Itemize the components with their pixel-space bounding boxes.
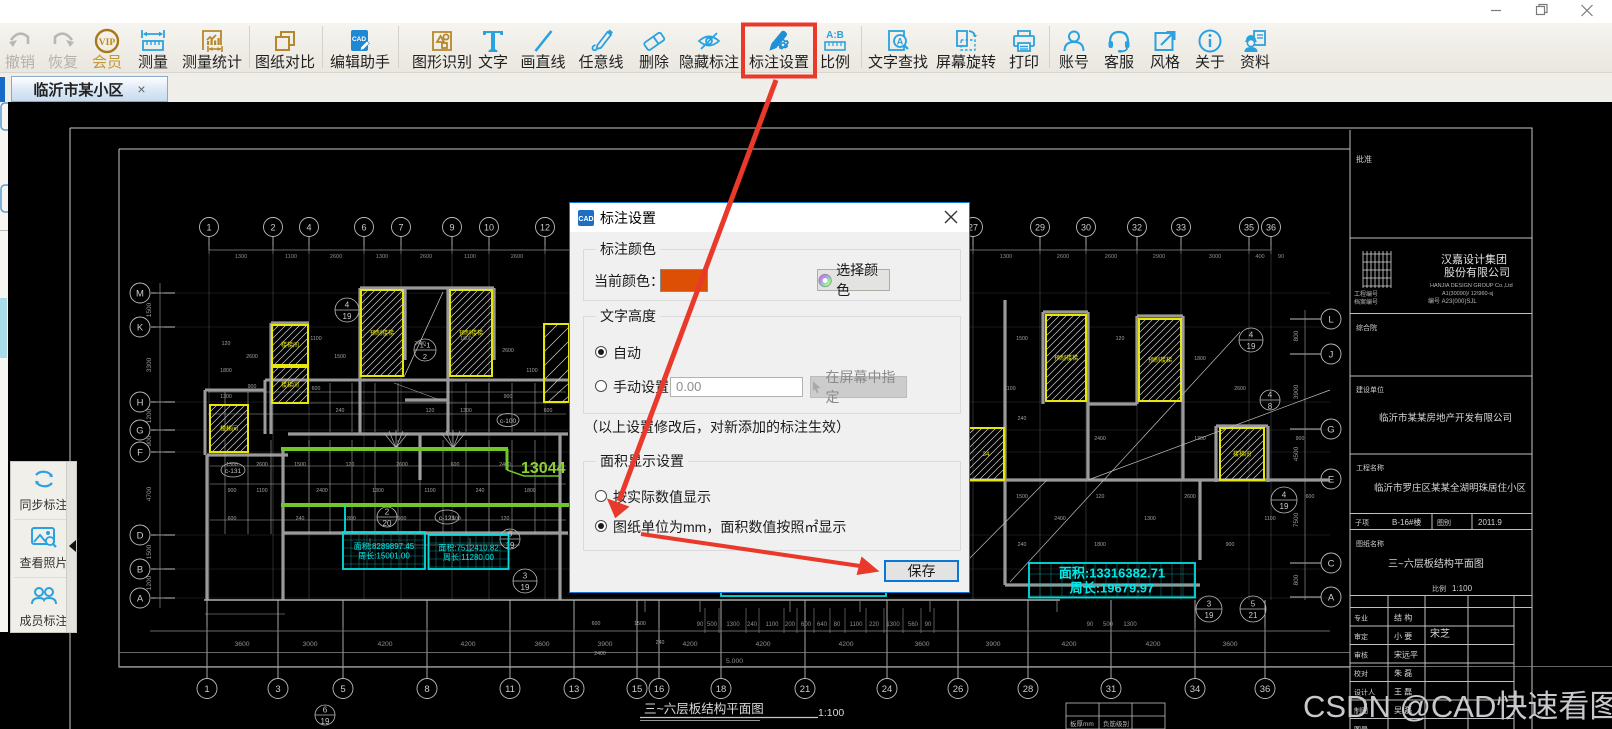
svg-text:1500: 1500 <box>1016 494 1028 500</box>
svg-text:1200: 1200 <box>146 575 153 590</box>
svg-text:120: 120 <box>222 341 231 347</box>
svg-text:3900: 3900 <box>597 641 612 648</box>
svg-text:工程编号: 工程编号 <box>1354 290 1378 298</box>
svg-text:K: K <box>137 323 144 334</box>
svg-text:临沂市罗庄区某某全湖明珠居住小区: 临沂市罗庄区某某全湖明珠居住小区 <box>1374 482 1527 494</box>
svg-text:楼梯间: 楼梯间 <box>220 425 238 433</box>
svg-text:VIP: VIP <box>99 38 116 48</box>
svg-text:宋远平: 宋远平 <box>1394 650 1418 660</box>
svg-text:2600: 2600 <box>420 254 432 260</box>
svg-text:3: 3 <box>275 684 280 695</box>
svg-text:10: 10 <box>484 223 494 233</box>
svg-text:19: 19 <box>321 717 330 726</box>
svg-text:1500: 1500 <box>334 354 346 360</box>
svg-text:3600: 3600 <box>534 641 549 648</box>
svg-text:2400: 2400 <box>414 341 426 347</box>
svg-text:1300: 1300 <box>886 622 900 628</box>
svg-text:120: 120 <box>1116 336 1125 342</box>
svg-text:1300: 1300 <box>220 394 232 400</box>
svg-text:900: 900 <box>248 384 257 390</box>
svg-text:3600: 3600 <box>234 641 249 648</box>
svg-text:90: 90 <box>1087 622 1094 628</box>
svg-text:面积:7512410.82: 面积:7512410.82 <box>438 542 499 552</box>
svg-text:2400: 2400 <box>1094 436 1106 442</box>
svg-text:240: 240 <box>296 516 305 522</box>
svg-text:900: 900 <box>228 488 237 494</box>
svg-text:240: 240 <box>1018 416 1027 422</box>
svg-text:4: 4 <box>345 301 350 310</box>
svg-text:3900: 3900 <box>985 641 1000 648</box>
svg-text:4200: 4200 <box>1145 641 1160 648</box>
svg-text:80: 80 <box>834 622 841 628</box>
svg-text:综合院: 综合院 <box>1356 323 1377 332</box>
svg-text:8: 8 <box>1268 402 1273 411</box>
svg-text:120: 120 <box>346 462 355 468</box>
svg-text:1300: 1300 <box>235 254 247 260</box>
svg-text:24: 24 <box>882 684 893 695</box>
svg-text:2600: 2600 <box>511 254 523 260</box>
svg-text:2400: 2400 <box>1054 516 1066 522</box>
svg-text:8: 8 <box>424 684 429 695</box>
svg-text:1300: 1300 <box>726 622 740 628</box>
svg-text:34: 34 <box>983 452 990 458</box>
svg-text:26: 26 <box>953 684 964 695</box>
svg-text:240: 240 <box>1018 542 1027 548</box>
svg-text:1300: 1300 <box>1144 516 1156 522</box>
svg-text:2400: 2400 <box>499 462 511 468</box>
svg-text:工程名称: 工程名称 <box>1356 463 1384 472</box>
svg-text:1:100: 1:100 <box>818 707 844 719</box>
svg-text:2: 2 <box>385 508 390 517</box>
svg-text:3: 3 <box>1207 600 1212 609</box>
svg-text:120: 120 <box>1096 494 1105 500</box>
svg-text:面积:13316382.71: 面积:13316382.71 <box>1059 566 1165 581</box>
svg-text:500: 500 <box>1103 622 1114 628</box>
svg-text:600: 600 <box>801 622 812 628</box>
svg-text:900: 900 <box>504 394 513 400</box>
svg-text:F: F <box>137 448 143 459</box>
svg-text:H: H <box>137 398 144 409</box>
svg-text:35: 35 <box>1244 223 1254 233</box>
svg-text:1500: 1500 <box>634 621 646 627</box>
svg-text:比例: 比例 <box>1432 584 1446 593</box>
svg-text:2400: 2400 <box>594 651 606 657</box>
svg-text:18: 18 <box>716 684 727 695</box>
svg-text:36: 36 <box>1266 223 1276 233</box>
svg-text:4: 4 <box>1249 331 1254 340</box>
svg-text:800: 800 <box>1293 330 1300 341</box>
svg-text:640: 640 <box>817 622 828 628</box>
svg-text:1500: 1500 <box>294 462 306 468</box>
svg-text:90: 90 <box>1278 254 1284 260</box>
svg-text:2600: 2600 <box>396 462 408 468</box>
svg-text:1100: 1100 <box>1004 386 1015 392</box>
svg-text:600: 600 <box>312 386 321 392</box>
svg-text:2600: 2600 <box>1057 254 1069 260</box>
svg-text:4200: 4200 <box>838 641 853 648</box>
svg-text:2600: 2600 <box>1105 254 1117 260</box>
svg-text:4200: 4200 <box>377 641 392 648</box>
svg-text:600: 600 <box>451 462 460 468</box>
svg-text:15: 15 <box>632 684 643 695</box>
svg-text:B-16#楼: B-16#楼 <box>1392 517 1421 527</box>
svg-text:L: L <box>1328 315 1333 326</box>
svg-text:21: 21 <box>1249 611 1258 620</box>
svg-text:M: M <box>136 289 144 300</box>
svg-text:31: 31 <box>1106 684 1117 695</box>
svg-text:子项: 子项 <box>1355 519 1369 527</box>
svg-text:19: 19 <box>1247 342 1256 351</box>
svg-text:1:100: 1:100 <box>1452 584 1473 593</box>
svg-text:2600: 2600 <box>1234 386 1246 392</box>
svg-text:1200: 1200 <box>146 408 153 423</box>
svg-text:1300: 1300 <box>460 408 472 414</box>
svg-text:1800: 1800 <box>1194 356 1206 362</box>
svg-text:32: 32 <box>1132 223 1142 233</box>
svg-text:1100: 1100 <box>1264 516 1275 522</box>
svg-text:13044: 13044 <box>521 460 566 477</box>
svg-text:股份有限公司: 股份有限公司 <box>1444 265 1510 279</box>
svg-text:1300: 1300 <box>376 254 388 260</box>
svg-text:4200: 4200 <box>755 641 770 648</box>
svg-text:G: G <box>136 426 143 437</box>
svg-text:29: 29 <box>1035 223 1045 233</box>
svg-text:三~六层板结构平面图: 三~六层板结构平面图 <box>1388 557 1484 570</box>
svg-text:900: 900 <box>1226 542 1235 548</box>
svg-text:19: 19 <box>506 541 515 550</box>
svg-text:A: A <box>137 594 144 605</box>
svg-text:审核: 审核 <box>1354 651 1368 660</box>
svg-text:A: A <box>1328 593 1335 604</box>
svg-text:预制楼梯: 预制楼梯 <box>370 329 394 337</box>
svg-text:11: 11 <box>505 684 515 695</box>
svg-text:240: 240 <box>747 622 758 628</box>
svg-text:1100: 1100 <box>766 622 780 628</box>
svg-text:A1(30090)/ 12\960-sj: A1(30090)/ 12\960-sj <box>1442 291 1493 297</box>
svg-text:3600: 3600 <box>914 641 929 648</box>
svg-text:3300: 3300 <box>146 357 153 372</box>
svg-text:校对: 校对 <box>1354 669 1368 678</box>
svg-text:600: 600 <box>1306 494 1315 500</box>
svg-text:A: A <box>897 36 904 46</box>
svg-text:图号: 图号 <box>1354 726 1368 729</box>
svg-text:C: C <box>1328 559 1335 570</box>
svg-text:1500: 1500 <box>1016 336 1028 342</box>
svg-text:HANJIA DESIGN GROUP Co.,Ltd: HANJIA DESIGN GROUP Co.,Ltd <box>1430 283 1513 289</box>
svg-text:3000: 3000 <box>1209 254 1221 260</box>
svg-text:1300: 1300 <box>226 462 238 468</box>
svg-text:2: 2 <box>423 352 427 361</box>
svg-text:4200: 4200 <box>1061 641 1076 648</box>
svg-text:CAD: CAD <box>352 36 366 43</box>
svg-text:图纸名称: 图纸名称 <box>1356 539 1384 548</box>
svg-text:1100: 1100 <box>850 622 864 628</box>
svg-text:4: 4 <box>306 223 311 233</box>
svg-text:预制楼梯: 预制楼梯 <box>1054 354 1078 362</box>
svg-text:2600: 2600 <box>330 254 342 260</box>
svg-text:90: 90 <box>925 622 932 628</box>
svg-text:20: 20 <box>383 519 392 528</box>
svg-text:2600: 2600 <box>1184 494 1196 500</box>
svg-text:4500: 4500 <box>1293 446 1300 461</box>
svg-text:B: B <box>137 565 143 576</box>
svg-text:36: 36 <box>1260 684 1271 695</box>
svg-text:1100: 1100 <box>256 488 267 494</box>
svg-text:周长:15001.00: 周长:15001.00 <box>358 550 410 560</box>
svg-text:周长:11280.00: 周长:11280.00 <box>443 552 495 562</box>
svg-text:板厚mm: 板厚mm <box>1070 719 1094 728</box>
svg-text:CAD: CAD <box>578 216 593 223</box>
svg-text:220: 220 <box>869 622 880 628</box>
svg-text:楼梯间: 楼梯间 <box>281 381 299 389</box>
svg-text:34: 34 <box>1190 684 1201 695</box>
svg-text:负筋级别: 负筋级别 <box>1103 719 1129 728</box>
svg-text:汉嘉设计集团: 汉嘉设计集团 <box>1441 252 1507 266</box>
svg-text:c-100: c-100 <box>500 418 517 425</box>
svg-text:三~六层板结构平面图: 三~六层板结构平面图 <box>644 701 764 716</box>
svg-text:21: 21 <box>800 684 811 695</box>
svg-text:D: D <box>137 531 144 542</box>
svg-text:c-131: c-131 <box>225 468 242 475</box>
svg-text:周长:19679.97: 周长:19679.97 <box>1070 581 1155 596</box>
svg-text:专业: 专业 <box>1354 614 1368 623</box>
svg-text:4200: 4200 <box>682 641 697 648</box>
svg-text:4: 4 <box>1268 391 1273 400</box>
svg-text:朱 磊: 朱 磊 <box>1394 668 1412 678</box>
svg-text:楼梯间: 楼梯间 <box>1233 450 1251 458</box>
svg-text:面积:8289897.45: 面积:8289897.45 <box>354 541 415 551</box>
svg-text:建设单位: 建设单位 <box>1356 385 1384 394</box>
svg-text:120: 120 <box>501 516 510 522</box>
svg-text:1100: 1100 <box>526 368 537 374</box>
svg-text:楼梯间: 楼梯间 <box>281 341 299 349</box>
svg-text:6: 6 <box>361 223 366 233</box>
svg-text:宋芝: 宋芝 <box>1430 627 1450 640</box>
svg-text:5.000: 5.000 <box>726 658 743 665</box>
svg-text:4: 4 <box>1282 491 1287 500</box>
svg-text:240: 240 <box>336 408 345 414</box>
svg-text:1300: 1300 <box>1194 436 1206 442</box>
svg-text:1300: 1300 <box>372 488 384 494</box>
svg-text:预制楼梯: 预制楼梯 <box>1148 356 1172 364</box>
svg-text:120: 120 <box>426 408 435 414</box>
svg-text:3: 3 <box>523 572 528 581</box>
svg-text:1100: 1100 <box>285 254 297 260</box>
svg-text:19: 19 <box>1205 611 1214 620</box>
svg-text:16: 16 <box>654 684 665 695</box>
svg-text:2011.9: 2011.9 <box>1478 518 1502 527</box>
svg-text:结 构: 结 构 <box>1394 613 1412 623</box>
svg-text:批准: 批准 <box>1356 154 1372 164</box>
svg-text:1800: 1800 <box>524 488 536 494</box>
svg-text:900: 900 <box>398 516 407 522</box>
svg-text:临沂市某某房地产开发有限公司: 临沂市某某房地产开发有限公司 <box>1379 412 1512 424</box>
svg-text:1300: 1300 <box>1123 622 1137 628</box>
svg-text:1800: 1800 <box>344 516 356 522</box>
svg-text:6: 6 <box>323 706 328 715</box>
svg-text:7: 7 <box>398 223 403 233</box>
svg-text:编号 A23(000)SJL: 编号 A23(000)SJL <box>1428 297 1477 305</box>
svg-text:1500: 1500 <box>449 516 461 522</box>
svg-text:2900: 2900 <box>1153 254 1165 260</box>
svg-text:19: 19 <box>343 312 352 321</box>
svg-text:2600: 2600 <box>246 354 258 360</box>
svg-text:12: 12 <box>540 223 550 233</box>
svg-text:28: 28 <box>1023 684 1034 695</box>
svg-text:9: 9 <box>449 223 454 233</box>
svg-text:1: 1 <box>204 684 209 695</box>
svg-text:2400: 2400 <box>316 488 328 494</box>
svg-text:600: 600 <box>228 516 237 522</box>
svg-text:小 要: 小 要 <box>1394 632 1412 641</box>
svg-text:档案编号: 档案编号 <box>1354 298 1378 306</box>
svg-text:800: 800 <box>1293 574 1300 585</box>
svg-text:5: 5 <box>340 684 345 695</box>
svg-text:3000: 3000 <box>302 641 317 648</box>
svg-text:4700: 4700 <box>146 486 153 501</box>
svg-text:1: 1 <box>206 223 211 233</box>
svg-text:600: 600 <box>544 408 553 414</box>
svg-text:1100: 1100 <box>464 254 476 260</box>
svg-text:1800: 1800 <box>460 336 472 342</box>
svg-text:2600: 2600 <box>502 348 514 354</box>
svg-text:560: 560 <box>908 622 919 628</box>
svg-text:4200: 4200 <box>460 641 475 648</box>
svg-text:A:B: A:B <box>826 30 844 41</box>
svg-text:30: 30 <box>1081 223 1091 233</box>
svg-text:500: 500 <box>707 622 718 628</box>
svg-text:240: 240 <box>476 488 485 494</box>
svg-text:J: J <box>1329 350 1334 361</box>
svg-text:240: 240 <box>656 640 665 646</box>
svg-text:19: 19 <box>1280 502 1289 511</box>
svg-text:19: 19 <box>521 583 530 592</box>
svg-text:1500: 1500 <box>146 544 153 559</box>
svg-text:1100: 1100 <box>424 488 435 494</box>
svg-text:3900: 3900 <box>1293 384 1300 399</box>
svg-text:90: 90 <box>697 622 704 628</box>
svg-text:13: 13 <box>569 684 580 695</box>
svg-text:7500: 7500 <box>1293 512 1300 527</box>
svg-text:1500: 1500 <box>146 302 153 317</box>
svg-text:600: 600 <box>592 621 601 627</box>
svg-text:400: 400 <box>1255 254 1264 260</box>
svg-text:3600: 3600 <box>1222 641 1237 648</box>
svg-text:200: 200 <box>785 622 796 628</box>
svg-text:1100: 1100 <box>310 336 321 342</box>
svg-text:审定: 审定 <box>1354 632 1368 641</box>
svg-text:1300: 1300 <box>1000 254 1012 260</box>
svg-text:G: G <box>1327 425 1334 436</box>
svg-text:5: 5 <box>1251 600 1256 609</box>
svg-text:图别: 图别 <box>1437 518 1451 527</box>
svg-text:900: 900 <box>146 435 153 446</box>
svg-text:1800: 1800 <box>220 368 232 374</box>
svg-text:900: 900 <box>1296 436 1305 442</box>
svg-text:1800: 1800 <box>1094 542 1106 548</box>
svg-text:33: 33 <box>1176 223 1186 233</box>
svg-text:2600: 2600 <box>256 462 268 468</box>
svg-text:2: 2 <box>270 223 275 233</box>
